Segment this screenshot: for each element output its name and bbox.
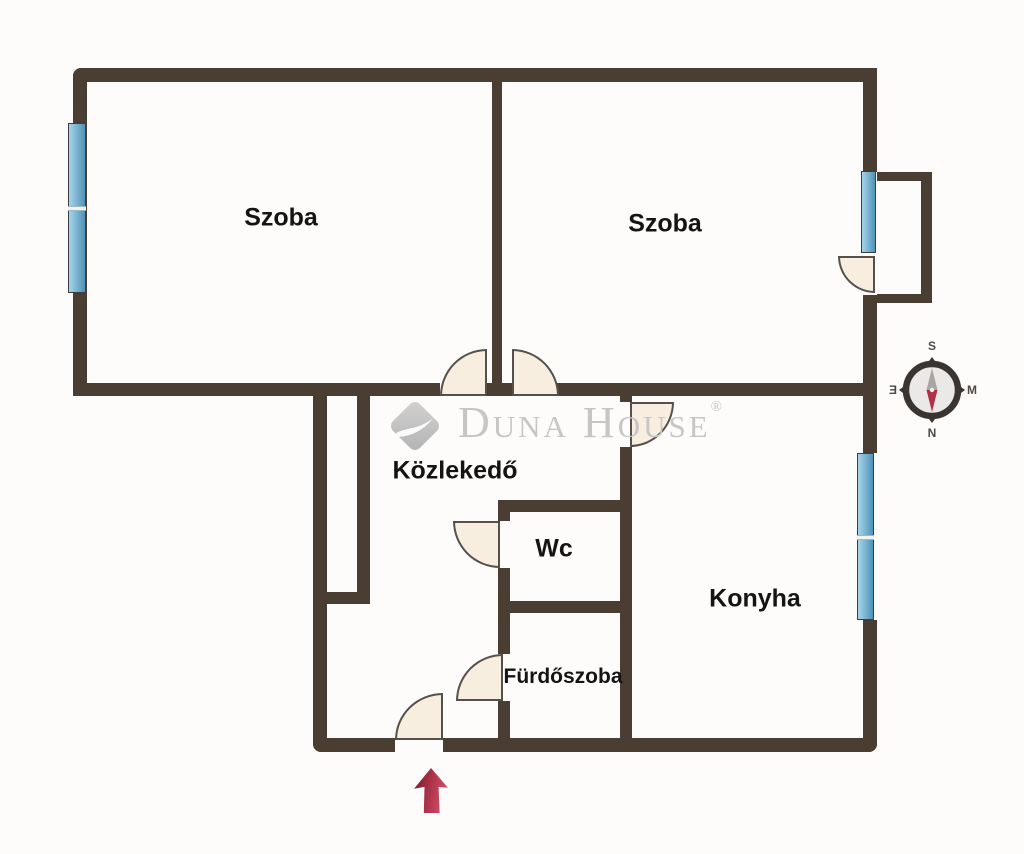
compass-rose: S N Ǝ M [884,333,980,447]
window-mullion [857,535,874,540]
wall-left-lower [313,383,327,752]
wall-konyha-left [620,447,632,740]
duna-house-watermark: Duna House ® [386,397,722,455]
wall-wc-top [498,500,632,512]
wall-right-upper [863,68,877,172]
wall-wc-furdo-divider [498,601,632,613]
wall-wc-left-b [498,568,510,654]
duna-house-brand-text: Duna House [458,397,711,449]
door-wc [453,521,500,568]
duna-house-logo-icon [386,397,444,455]
wall-bottom-left [313,738,395,752]
wall-balcony-right [921,172,932,303]
compass-label-bottom: N [928,426,937,440]
door-szoba-right [512,349,559,396]
floor-plan: Szoba Szoba Közlekedő Wc Fürdőszoba Kony… [0,0,1024,854]
wall-right-lower [863,620,877,752]
window-konyha [857,453,874,620]
room-label-konyha: Konyha [709,585,801,614]
wall-closet-cap [320,592,370,604]
wall-divider-left [73,383,440,396]
wall-wc-left-a [498,500,510,521]
wall-closet-inner [357,390,370,604]
compass-icon [898,356,966,424]
entrance-arrow-icon [413,768,449,813]
room-label-kozlekedo: Közlekedő [392,457,517,486]
compass-label-right: M [967,383,977,397]
window-szoba-left [68,123,86,293]
compass-label-left: Ǝ [889,383,897,397]
compass-label-top: S [928,339,936,353]
window-mullion [68,206,86,211]
door-szoba-left [440,349,487,396]
wall-bottom-right [443,738,877,752]
door-balcony [838,256,875,293]
wall-wc-left-c [498,701,510,740]
registered-trademark: ® [711,399,722,416]
room-label-szoba-left: Szoba [244,204,318,233]
door-furdoszoba [456,654,503,701]
wall-balcony-bottom [877,294,932,303]
room-label-wc: Wc [535,535,573,564]
room-label-szoba-right: Szoba [628,210,702,239]
wall-divider-right [557,383,877,396]
wall-center-vertical [492,80,502,390]
door-entrance [395,693,443,740]
window-szoba-right [861,171,876,253]
wall-right-middle [863,295,877,453]
wall-top [73,68,877,82]
wall-divider-stub [487,383,512,396]
room-label-furdoszoba: Fürdőszoba [504,665,623,689]
